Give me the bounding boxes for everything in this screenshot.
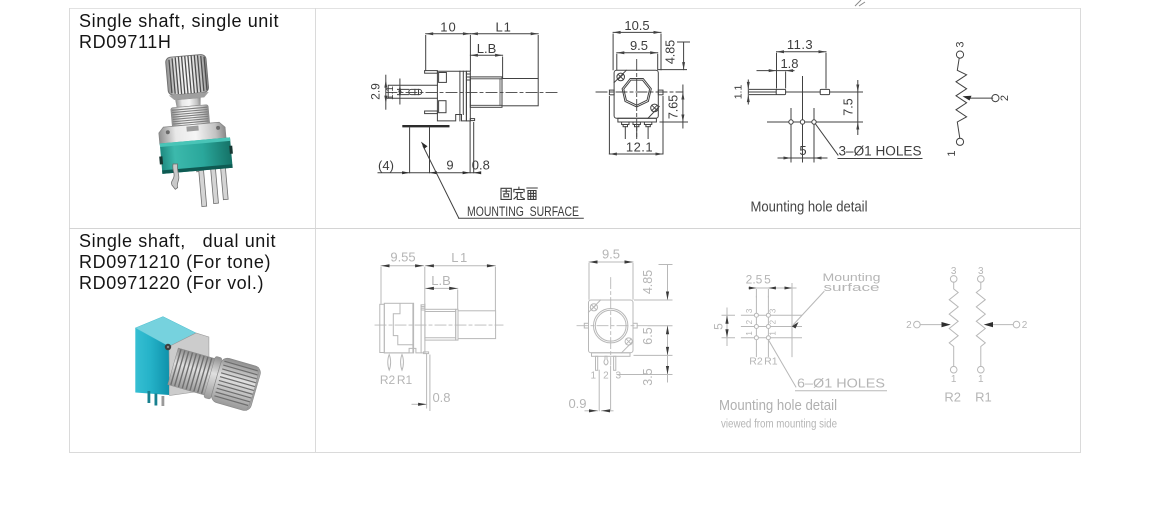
svg-text:1.8: 1.8 bbox=[780, 56, 798, 71]
svg-text:3–Ø1 HOLES: 3–Ø1 HOLES bbox=[839, 143, 922, 158]
svg-text:1: 1 bbox=[951, 374, 957, 385]
svg-text:3: 3 bbox=[616, 371, 622, 382]
svg-text:2: 2 bbox=[603, 371, 609, 382]
svg-text:10.5: 10.5 bbox=[624, 18, 649, 33]
svg-text:3: 3 bbox=[768, 308, 777, 313]
svg-text:R1: R1 bbox=[975, 389, 992, 404]
svg-text:0.9: 0.9 bbox=[568, 396, 586, 411]
svg-text:2: 2 bbox=[745, 319, 754, 324]
svg-text:(4): (4) bbox=[378, 158, 394, 173]
svg-text:L.B: L.B bbox=[477, 41, 497, 56]
svg-text:3: 3 bbox=[955, 41, 967, 47]
svg-text:2.5: 2.5 bbox=[746, 272, 763, 286]
svg-text:4.85: 4.85 bbox=[664, 40, 678, 64]
svg-text:5: 5 bbox=[712, 323, 726, 330]
svg-text:5: 5 bbox=[799, 143, 806, 158]
svg-text:9.5: 9.5 bbox=[630, 38, 648, 53]
svg-text:1: 1 bbox=[978, 374, 984, 385]
svg-text:9: 9 bbox=[446, 157, 453, 172]
svg-text:surface: surface bbox=[824, 282, 880, 294]
svg-text:L1: L1 bbox=[495, 19, 511, 34]
svg-text:1: 1 bbox=[768, 331, 777, 336]
svg-text:L.B: L.B bbox=[431, 273, 451, 288]
svg-text:R1: R1 bbox=[397, 373, 413, 387]
svg-text:7.65: 7.65 bbox=[667, 95, 681, 119]
svg-text:9.55: 9.55 bbox=[390, 250, 415, 265]
svg-text:R2: R2 bbox=[380, 373, 396, 387]
svg-text:12.1: 12.1 bbox=[626, 139, 653, 154]
svg-text:10: 10 bbox=[440, 19, 456, 34]
svg-text:3: 3 bbox=[745, 308, 754, 313]
svg-text:Mounting hole detail: Mounting hole detail bbox=[751, 200, 868, 216]
svg-text:0.8: 0.8 bbox=[472, 157, 490, 172]
svg-text:R2: R2 bbox=[749, 355, 763, 367]
svg-text:0.8: 0.8 bbox=[432, 390, 450, 405]
svg-text:1: 1 bbox=[591, 371, 597, 382]
svg-text:viewed from mounting side: viewed from mounting side bbox=[721, 419, 837, 431]
svg-text:9.5: 9.5 bbox=[602, 246, 620, 261]
svg-text:5: 5 bbox=[764, 272, 771, 286]
svg-text:2.9: 2.9 bbox=[369, 83, 383, 100]
svg-text:1: 1 bbox=[745, 331, 754, 336]
svg-text:11.3: 11.3 bbox=[787, 37, 813, 52]
svg-text:1: 1 bbox=[946, 150, 958, 156]
svg-text:2: 2 bbox=[1022, 320, 1028, 331]
svg-text:R1: R1 bbox=[764, 355, 778, 367]
svg-text:MOUNTING SURFACE: MOUNTING SURFACE bbox=[467, 204, 579, 219]
svg-text:3.5: 3.5 bbox=[641, 368, 655, 385]
svg-text:L1: L1 bbox=[451, 250, 468, 265]
svg-text:6–Ø1 HOLES: 6–Ø1 HOLES bbox=[797, 376, 885, 391]
svg-text:6.5: 6.5 bbox=[641, 327, 655, 344]
svg-text:4.85: 4.85 bbox=[641, 270, 655, 294]
svg-text:7.5: 7.5 bbox=[842, 98, 856, 115]
svg-text:2: 2 bbox=[999, 95, 1011, 101]
svg-text:2: 2 bbox=[906, 320, 912, 331]
svg-text:R2: R2 bbox=[944, 389, 961, 404]
svg-text:1.1: 1.1 bbox=[733, 85, 745, 100]
svg-text:2: 2 bbox=[768, 319, 777, 324]
svg-text:Mounting hole detail: Mounting hole detail bbox=[719, 397, 837, 414]
